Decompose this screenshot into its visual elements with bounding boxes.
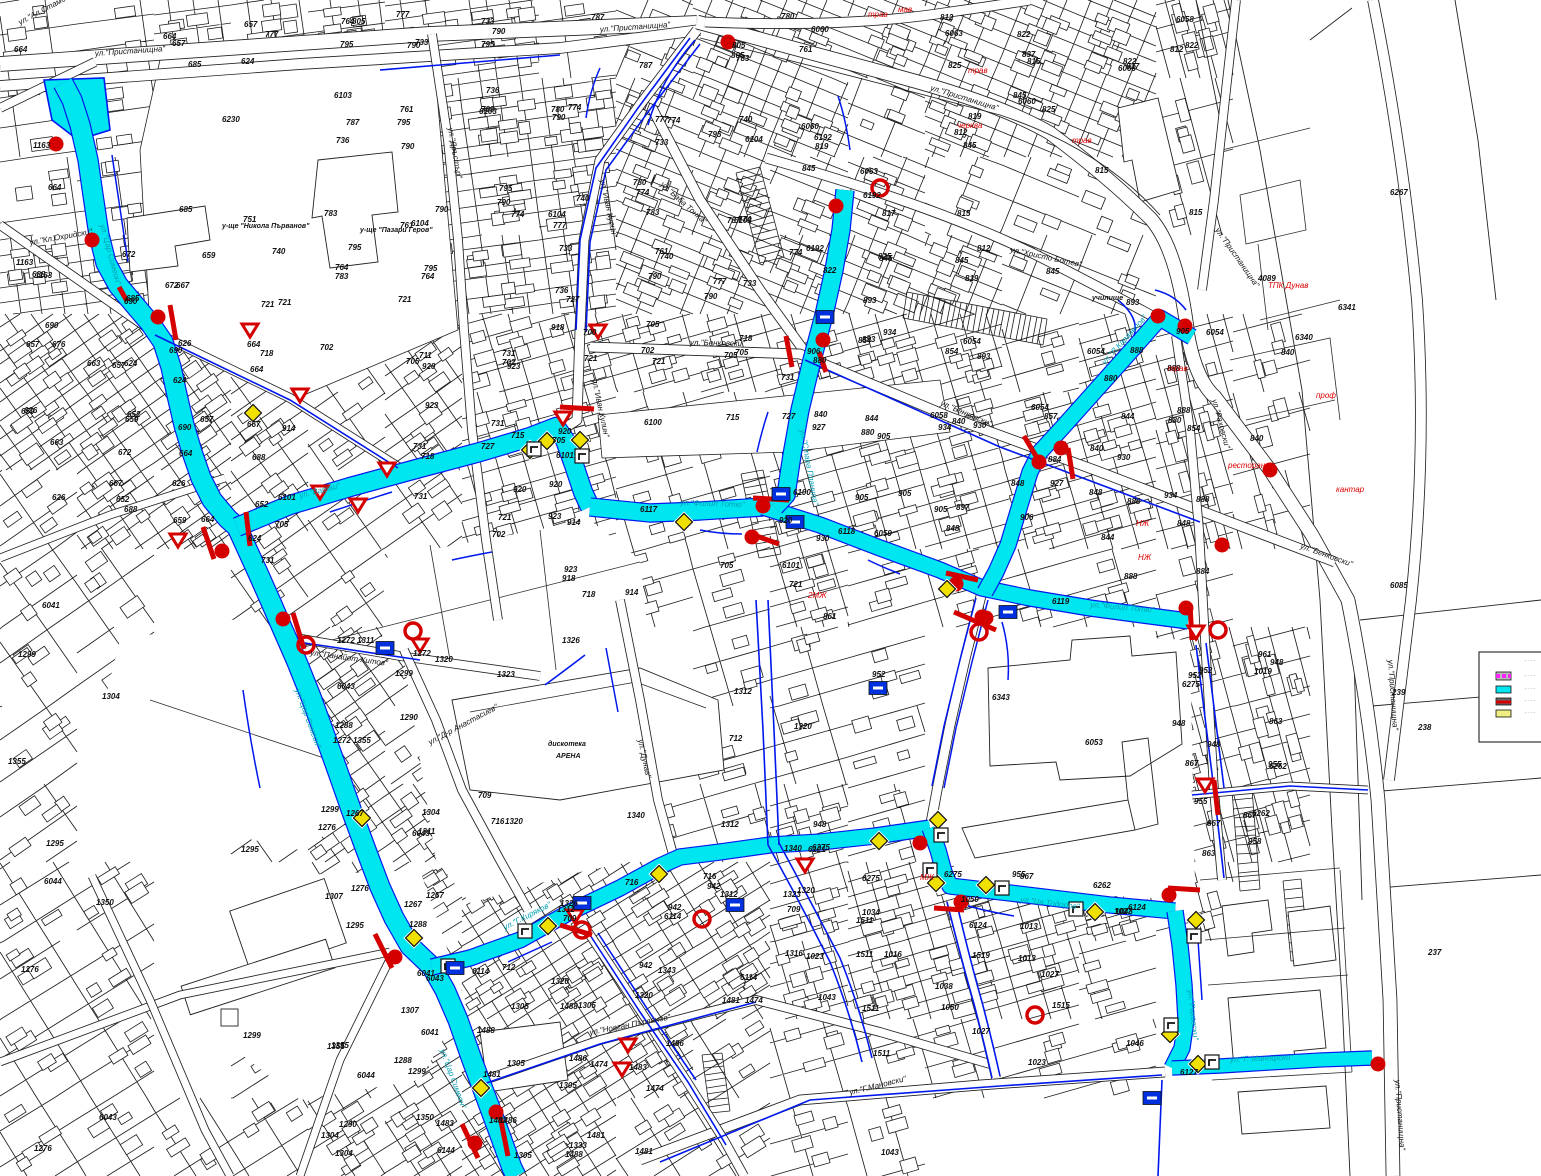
- svg-text:774: 774: [568, 103, 582, 112]
- svg-text:688: 688: [124, 505, 138, 514]
- svg-text:НЖ: НЖ: [1138, 553, 1152, 562]
- svg-text:764: 764: [341, 17, 355, 26]
- svg-text:923: 923: [564, 565, 578, 574]
- svg-text:6101: 6101: [556, 451, 574, 460]
- svg-text:1515: 1515: [1052, 1001, 1070, 1010]
- svg-text:948: 948: [1207, 740, 1221, 749]
- svg-text:952: 952: [1188, 671, 1202, 680]
- svg-text:716: 716: [491, 817, 505, 826]
- svg-text:1312: 1312: [721, 820, 739, 829]
- svg-text:918: 918: [562, 574, 576, 583]
- svg-text:888: 888: [1177, 406, 1191, 415]
- svg-text:848: 848: [946, 524, 960, 533]
- svg-text:731: 731: [781, 373, 795, 382]
- svg-text:1312: 1312: [720, 890, 738, 899]
- svg-text:736: 736: [336, 136, 350, 145]
- svg-text:училище: училище: [1091, 295, 1123, 302]
- svg-text:1305: 1305: [514, 1151, 532, 1160]
- svg-text:1013: 1013: [1018, 954, 1036, 963]
- svg-text:822: 822: [1017, 30, 1031, 39]
- svg-text:ул."Бенковски": ул."Бенковски": [689, 338, 746, 348]
- svg-text:790: 790: [407, 41, 421, 50]
- svg-text:6058: 6058: [1176, 15, 1194, 24]
- svg-text:780: 780: [551, 105, 565, 114]
- svg-text:840: 840: [814, 410, 828, 419]
- svg-text:790: 790: [492, 27, 506, 36]
- svg-text:6060: 6060: [801, 122, 819, 131]
- svg-text:920: 920: [558, 427, 572, 436]
- svg-text:840: 840: [952, 417, 966, 426]
- svg-text:НЖ: НЖ: [1136, 519, 1150, 528]
- svg-text:795: 795: [708, 130, 722, 139]
- svg-text:6059: 6059: [874, 529, 892, 538]
- svg-text:1019: 1019: [1254, 667, 1272, 676]
- svg-text:861: 861: [823, 612, 837, 621]
- svg-text:дискотека: дискотека: [548, 740, 586, 748]
- svg-text:1483: 1483: [489, 1116, 507, 1125]
- svg-text:1340: 1340: [627, 811, 645, 820]
- svg-text:6058: 6058: [930, 411, 948, 420]
- svg-text:712: 712: [729, 734, 743, 743]
- svg-text:709: 709: [478, 791, 492, 800]
- svg-text:927: 927: [1050, 479, 1064, 488]
- svg-text:1038: 1038: [935, 982, 953, 991]
- svg-text:6054: 6054: [1206, 328, 1224, 337]
- svg-text:6063: 6063: [860, 167, 878, 176]
- svg-text:764: 764: [421, 272, 435, 281]
- svg-text:905: 905: [898, 489, 912, 498]
- svg-text:6101: 6101: [278, 493, 296, 502]
- svg-text:716: 716: [703, 872, 717, 881]
- svg-text:751: 751: [243, 215, 257, 224]
- svg-text:787: 787: [591, 13, 605, 22]
- svg-text:1486: 1486: [666, 1039, 684, 1048]
- svg-text:819: 819: [965, 274, 979, 283]
- svg-text:667: 667: [247, 420, 261, 429]
- svg-text:700: 700: [583, 328, 597, 337]
- svg-text:6124: 6124: [969, 921, 987, 930]
- svg-text:1320: 1320: [551, 977, 569, 986]
- svg-text:1511: 1511: [856, 916, 874, 925]
- svg-text:6267: 6267: [1390, 188, 1408, 197]
- svg-text:6101: 6101: [782, 561, 800, 570]
- svg-text:867: 867: [1185, 759, 1199, 768]
- svg-text:948: 948: [813, 820, 827, 829]
- svg-text:6275: 6275: [944, 870, 962, 879]
- svg-text:1267: 1267: [426, 891, 444, 900]
- svg-text:6124: 6124: [1128, 903, 1146, 912]
- svg-text:761: 761: [799, 45, 813, 54]
- svg-text:6041: 6041: [421, 1028, 439, 1037]
- svg-text:790: 790: [704, 292, 718, 301]
- svg-text:840: 840: [1281, 348, 1295, 357]
- svg-text:6085: 6085: [1390, 581, 1408, 590]
- svg-text:6121: 6121: [808, 845, 826, 854]
- svg-text:659: 659: [173, 516, 187, 525]
- svg-text:690: 690: [45, 321, 59, 330]
- svg-text:1295: 1295: [46, 839, 64, 848]
- svg-text:740: 740: [272, 247, 286, 256]
- svg-text:927: 927: [812, 423, 826, 432]
- svg-text:787: 787: [346, 118, 360, 127]
- svg-text:934: 934: [883, 328, 897, 337]
- svg-text:914: 914: [567, 518, 581, 527]
- svg-text:705: 705: [646, 320, 660, 329]
- svg-text:783: 783: [335, 272, 349, 281]
- svg-text:721: 721: [789, 580, 803, 589]
- svg-text:845: 845: [963, 141, 977, 150]
- svg-text:783: 783: [481, 105, 495, 114]
- svg-text:у-ще "Никола Първанов": у-ще "Никола Първанов": [221, 223, 310, 230]
- svg-text:880: 880: [861, 428, 875, 437]
- svg-text:923: 923: [425, 401, 439, 410]
- svg-text:780: 780: [633, 178, 647, 187]
- svg-text:733: 733: [481, 17, 495, 26]
- svg-text:672: 672: [165, 281, 179, 290]
- svg-text:942: 942: [639, 961, 653, 970]
- svg-text:905: 905: [877, 432, 891, 441]
- svg-text:1305: 1305: [511, 1002, 529, 1011]
- svg-text:685: 685: [188, 60, 202, 69]
- svg-text:812: 812: [1170, 45, 1184, 54]
- svg-text:764: 764: [335, 263, 349, 272]
- svg-text:705: 705: [552, 436, 566, 445]
- svg-text:905: 905: [855, 493, 869, 502]
- svg-text:731: 731: [413, 442, 427, 451]
- svg-text:1267: 1267: [346, 809, 364, 818]
- svg-text:659: 659: [202, 251, 216, 260]
- svg-text:6262: 6262: [1252, 809, 1270, 818]
- svg-text:930: 930: [816, 534, 830, 543]
- svg-text:6262: 6262: [1269, 762, 1287, 771]
- svg-text:1288: 1288: [409, 920, 427, 929]
- svg-text:774: 774: [738, 215, 752, 224]
- svg-text:1046: 1046: [1126, 1039, 1144, 1048]
- svg-text:1295: 1295: [346, 921, 364, 930]
- svg-text:667: 667: [109, 479, 123, 488]
- svg-text:923: 923: [548, 512, 562, 521]
- svg-text:733: 733: [559, 244, 573, 253]
- svg-text:1299: 1299: [408, 1067, 426, 1076]
- svg-text:1511: 1511: [862, 1004, 880, 1013]
- svg-text:1311: 1311: [357, 636, 375, 645]
- svg-text:721: 721: [261, 300, 275, 309]
- svg-text:659: 659: [125, 415, 139, 424]
- svg-text:844: 844: [1101, 533, 1115, 542]
- svg-text:1050: 1050: [961, 895, 979, 904]
- svg-text:1034: 1034: [862, 908, 880, 917]
- svg-text:1290: 1290: [339, 1120, 357, 1129]
- svg-text:783: 783: [324, 209, 338, 218]
- svg-text:893: 893: [977, 352, 991, 361]
- svg-text:1483: 1483: [629, 1063, 647, 1072]
- svg-text:880: 880: [813, 356, 827, 365]
- svg-text:.·· ··· ··: .·· ··· ··: [1524, 699, 1535, 703]
- svg-text:6054: 6054: [1087, 347, 1105, 356]
- svg-text:6054: 6054: [963, 337, 981, 346]
- svg-text:888: 888: [1130, 346, 1144, 355]
- svg-text:6119: 6119: [1052, 597, 1070, 606]
- svg-text:718: 718: [739, 334, 753, 343]
- svg-text:920: 920: [422, 362, 436, 371]
- svg-text:АРЕНА: АРЕНА: [555, 753, 581, 760]
- svg-text:1488: 1488: [477, 1026, 495, 1035]
- svg-text:624: 624: [241, 57, 255, 66]
- svg-text:мав: мав: [898, 5, 912, 14]
- svg-text:712: 712: [502, 963, 516, 972]
- svg-text:893: 893: [1126, 298, 1140, 307]
- svg-text:685: 685: [126, 294, 140, 303]
- svg-text:812: 812: [977, 244, 991, 253]
- svg-text:774: 774: [789, 248, 803, 257]
- svg-text:920: 920: [513, 485, 527, 494]
- svg-text:1305: 1305: [578, 1001, 596, 1010]
- svg-text:1272: 1272: [337, 636, 355, 645]
- svg-text:1163: 1163: [33, 141, 51, 150]
- svg-text:1304: 1304: [321, 1131, 339, 1140]
- svg-text:942: 942: [668, 903, 682, 912]
- svg-text:733: 733: [655, 138, 669, 147]
- svg-text:716: 716: [625, 878, 639, 887]
- svg-text:кантар: кантар: [1336, 485, 1365, 494]
- svg-text:1023: 1023: [1028, 1058, 1046, 1067]
- svg-text:.·· ··· ··: .·· ··· ··: [1524, 659, 1535, 663]
- svg-text:672: 672: [118, 448, 132, 457]
- svg-text:1304: 1304: [102, 692, 120, 701]
- svg-text:1481: 1481: [587, 1131, 605, 1140]
- svg-text:709: 709: [563, 914, 577, 923]
- svg-text:трав: трав: [968, 66, 988, 75]
- svg-text:1290: 1290: [400, 713, 418, 722]
- svg-text:815: 815: [957, 209, 971, 218]
- svg-text:6230: 6230: [222, 115, 240, 124]
- svg-text:817: 817: [1126, 62, 1140, 71]
- svg-text:705: 705: [735, 348, 749, 357]
- svg-text:790: 790: [497, 198, 511, 207]
- svg-text:1307: 1307: [325, 892, 343, 901]
- svg-text:721: 721: [278, 298, 292, 307]
- svg-text:6104: 6104: [745, 135, 763, 144]
- svg-text:777: 777: [553, 221, 567, 230]
- svg-text:2МЖ: 2МЖ: [807, 591, 827, 600]
- svg-text:705: 705: [406, 357, 420, 366]
- svg-text:795: 795: [499, 184, 513, 193]
- svg-text:664: 664: [250, 365, 264, 374]
- svg-text:1316: 1316: [785, 949, 803, 958]
- svg-text:888: 888: [1124, 572, 1138, 581]
- svg-text:1320: 1320: [635, 991, 653, 1000]
- svg-text:934: 934: [1164, 491, 1178, 500]
- svg-text:790: 790: [552, 113, 566, 122]
- svg-text:трав: трав: [1168, 364, 1188, 373]
- svg-text:930: 930: [1117, 453, 1131, 462]
- svg-text:840: 840: [1250, 434, 1264, 443]
- svg-text:6044: 6044: [44, 877, 62, 886]
- svg-text:840: 840: [1090, 444, 1104, 453]
- svg-text:790: 790: [401, 142, 415, 151]
- svg-text:6114: 6114: [472, 967, 490, 976]
- svg-text:854: 854: [858, 336, 872, 345]
- svg-text:6103: 6103: [334, 91, 352, 100]
- svg-text:1350: 1350: [416, 1113, 434, 1122]
- svg-text:657: 657: [172, 39, 186, 48]
- svg-text:952: 952: [872, 670, 886, 679]
- svg-text:1288: 1288: [394, 1056, 412, 1065]
- svg-text:1013: 1013: [1020, 922, 1038, 931]
- svg-text:657: 657: [244, 20, 258, 29]
- svg-text:795: 795: [481, 40, 495, 49]
- svg-text:664: 664: [48, 183, 62, 192]
- svg-text:795: 795: [397, 118, 411, 127]
- svg-text:721: 721: [652, 357, 666, 366]
- svg-text:6192: 6192: [863, 191, 881, 200]
- svg-text:1272: 1272: [413, 649, 431, 658]
- svg-text:.·· ··· ··: .·· ··· ··: [1524, 711, 1535, 715]
- svg-text:1299: 1299: [243, 1031, 261, 1040]
- svg-text:867: 867: [1020, 872, 1034, 881]
- svg-text:863: 863: [1269, 717, 1283, 726]
- svg-text:884: 884: [1196, 567, 1210, 576]
- svg-text:1299: 1299: [321, 805, 339, 814]
- svg-text:893: 893: [863, 296, 877, 305]
- svg-text:905: 905: [1176, 327, 1190, 336]
- svg-text:6060: 6060: [1018, 97, 1036, 106]
- svg-text:702: 702: [492, 530, 506, 539]
- svg-text:1486: 1486: [569, 1054, 587, 1063]
- svg-text:914: 914: [282, 424, 296, 433]
- svg-text:трав: трав: [1072, 136, 1092, 145]
- svg-text:черква: черква: [957, 121, 983, 130]
- svg-text:688: 688: [32, 270, 46, 279]
- svg-text:1016: 1016: [884, 950, 902, 959]
- svg-text:6262: 6262: [1093, 881, 1111, 890]
- svg-text:1276: 1276: [21, 965, 39, 974]
- svg-text:6043: 6043: [99, 1113, 117, 1122]
- svg-text:854: 854: [1187, 424, 1201, 433]
- svg-text:721: 721: [584, 354, 598, 363]
- svg-text:трав: трав: [868, 10, 888, 19]
- svg-text:1488: 1488: [560, 1002, 578, 1011]
- svg-text:6044: 6044: [357, 1071, 375, 1080]
- svg-text:239: 239: [1391, 688, 1406, 697]
- svg-text:1320: 1320: [794, 722, 812, 731]
- svg-text:6192: 6192: [814, 133, 832, 142]
- svg-text:664: 664: [247, 340, 261, 349]
- svg-text:626: 626: [24, 406, 38, 415]
- svg-text:657: 657: [112, 361, 126, 370]
- svg-text:884: 884: [1048, 455, 1062, 464]
- svg-text:790: 790: [435, 205, 449, 214]
- svg-text:6043: 6043: [426, 974, 444, 983]
- svg-text:1305: 1305: [507, 1059, 525, 1068]
- svg-text:6127: 6127: [1180, 1068, 1198, 1077]
- svg-text:1343: 1343: [658, 966, 676, 975]
- svg-text:1481: 1481: [635, 1147, 653, 1156]
- svg-text:715: 715: [511, 431, 525, 440]
- svg-text:6104: 6104: [548, 210, 566, 219]
- svg-text:777: 777: [265, 30, 279, 39]
- svg-text:6343: 6343: [992, 693, 1010, 702]
- svg-text:237: 237: [1427, 948, 1442, 957]
- svg-text:624: 624: [173, 376, 187, 385]
- svg-text:6114: 6114: [664, 912, 682, 921]
- svg-text:1050: 1050: [941, 1003, 959, 1012]
- svg-text:1043: 1043: [818, 993, 836, 1002]
- svg-text:6100: 6100: [644, 418, 662, 427]
- svg-text:702: 702: [320, 343, 334, 352]
- svg-text:736: 736: [486, 86, 500, 95]
- svg-text:1299: 1299: [18, 650, 36, 659]
- svg-text:6275: 6275: [862, 874, 880, 883]
- svg-text:888: 888: [1196, 495, 1210, 504]
- svg-text:1481: 1481: [722, 996, 740, 1005]
- svg-text:906: 906: [807, 347, 821, 356]
- svg-text:1481: 1481: [483, 1070, 501, 1079]
- svg-text:6144: 6144: [437, 1146, 455, 1155]
- svg-text:6192: 6192: [806, 244, 824, 253]
- svg-text:664: 664: [201, 515, 215, 524]
- svg-text:854: 854: [945, 347, 959, 356]
- svg-text:1474: 1474: [745, 996, 763, 1005]
- svg-text:1312: 1312: [734, 687, 752, 696]
- svg-text:790: 790: [648, 272, 662, 281]
- svg-text:731: 731: [261, 556, 275, 565]
- svg-text:1027: 1027: [1041, 970, 1059, 979]
- svg-text:812: 812: [940, 13, 954, 22]
- svg-text:914: 914: [625, 588, 639, 597]
- svg-text:948: 948: [1172, 719, 1186, 728]
- svg-text:731: 731: [414, 492, 428, 501]
- svg-text:1027: 1027: [972, 1027, 990, 1036]
- svg-text:727: 727: [481, 442, 495, 451]
- svg-text:905: 905: [934, 505, 948, 514]
- svg-text:1272: 1272: [333, 736, 351, 745]
- svg-text:923: 923: [507, 362, 521, 371]
- svg-text:888: 888: [1127, 497, 1141, 506]
- svg-text:6053: 6053: [1085, 738, 1103, 747]
- svg-text:783: 783: [736, 54, 750, 63]
- svg-text:657: 657: [26, 340, 40, 349]
- svg-text:6275: 6275: [1182, 680, 1200, 689]
- svg-text:.·· ··· ··: .·· ··· ··: [1524, 674, 1535, 678]
- svg-text:958: 958: [1248, 837, 1262, 846]
- svg-text:6043: 6043: [337, 682, 355, 691]
- svg-text:1355: 1355: [353, 736, 371, 745]
- svg-text:718: 718: [260, 349, 274, 358]
- svg-text:844: 844: [1121, 412, 1135, 421]
- svg-text:920: 920: [549, 480, 563, 489]
- svg-text:1320: 1320: [435, 655, 453, 664]
- svg-text:780: 780: [781, 12, 795, 21]
- svg-text:819: 819: [968, 112, 982, 121]
- svg-text:6118: 6118: [838, 527, 856, 536]
- svg-text:685: 685: [179, 205, 193, 214]
- svg-text:863: 863: [1202, 849, 1216, 858]
- svg-text:783: 783: [646, 208, 660, 217]
- svg-text:825: 825: [948, 61, 962, 70]
- svg-text:663: 663: [50, 438, 64, 447]
- svg-text:1295: 1295: [241, 845, 259, 854]
- svg-text:867: 867: [1207, 819, 1221, 828]
- svg-text:845: 845: [955, 256, 969, 265]
- svg-text:676: 676: [52, 340, 66, 349]
- svg-text:проф: проф: [1316, 391, 1336, 400]
- svg-text:690: 690: [178, 423, 192, 432]
- svg-text:848: 848: [1011, 479, 1025, 488]
- svg-text:795: 795: [340, 40, 354, 49]
- svg-text:663: 663: [87, 359, 101, 368]
- svg-text:1511: 1511: [873, 1049, 891, 1058]
